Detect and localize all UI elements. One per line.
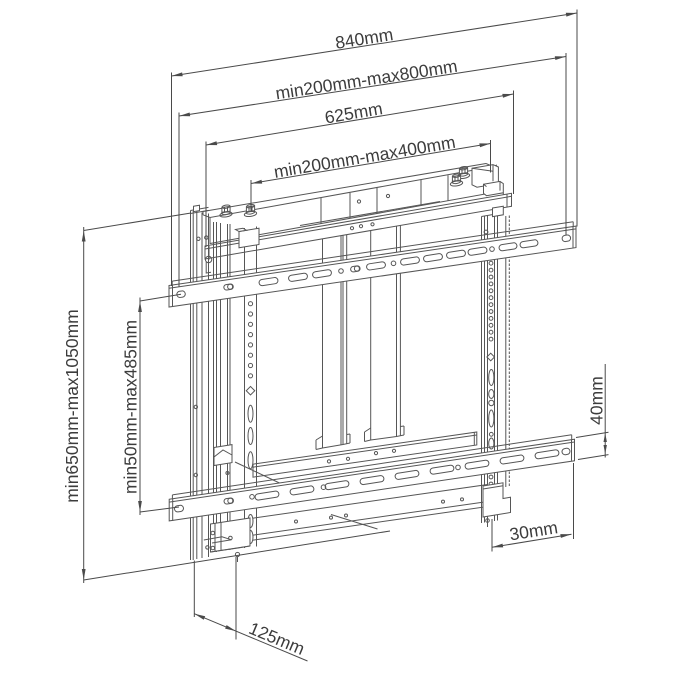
svg-text:40mm: 40mm (587, 376, 607, 425)
svg-text:min50mm-max485mm: min50mm-max485mm (120, 320, 140, 494)
svg-text:min650mm-max1050mm: min650mm-max1050mm (62, 309, 82, 503)
